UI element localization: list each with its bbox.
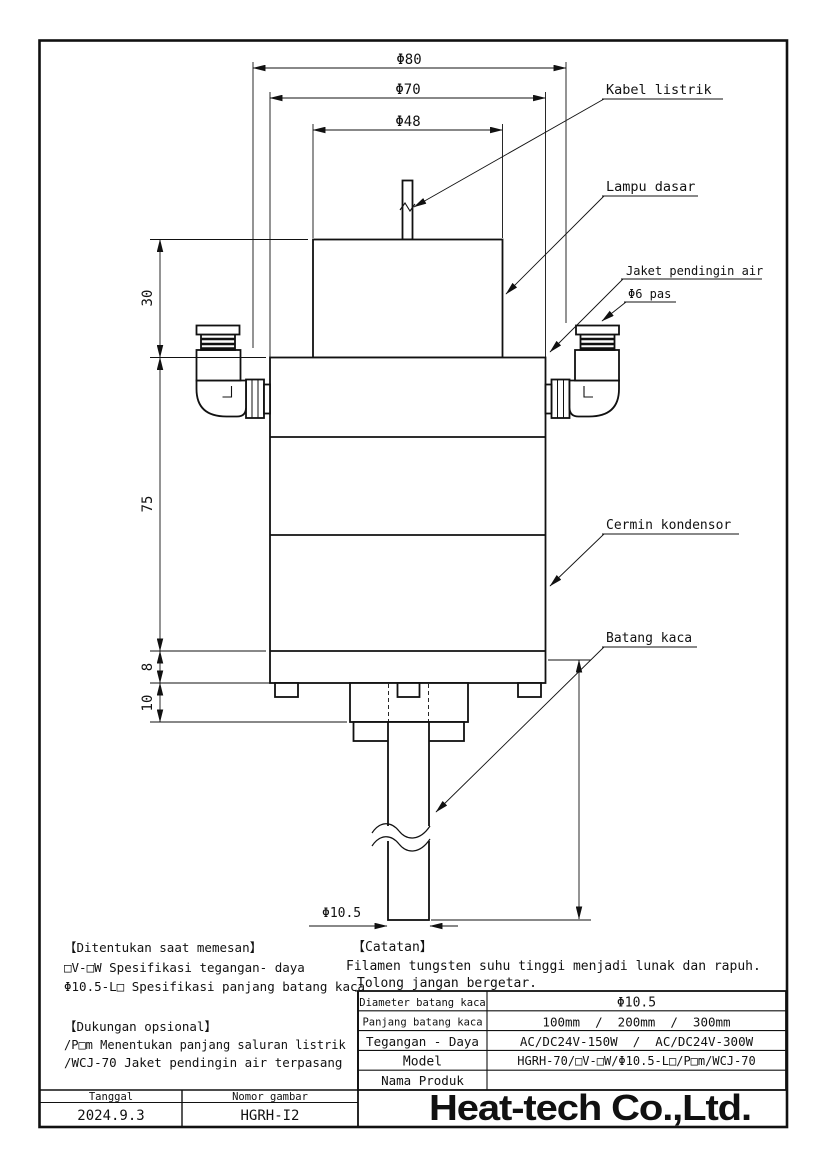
fitting-elbow-right [570, 381, 620, 417]
spec-label-model: Model [403, 1055, 442, 1070]
caution-line-vibration: Tolong jangan bergetar. [357, 976, 537, 991]
rod-break-gap [382, 826, 435, 841]
fitting-washer-left [264, 385, 270, 414]
spec-label-diameter: Diameter batang kaca [359, 997, 485, 1009]
dim-text-8: 8 [140, 663, 156, 671]
caution-notes: 【Catatan】 Filamen tungsten suhu tinggi m… [346, 940, 761, 991]
label-phi6-pas: Φ6 pas [628, 287, 671, 301]
fitting-right [546, 326, 620, 419]
dim-text-30: 30 [140, 290, 156, 307]
order-notes: 【Ditentukan saat memesan】 □V-□W Spesifik… [64, 940, 365, 994]
dim-text-phi80: Φ80 [396, 52, 421, 68]
label-jaket-pendingin: Jaket pendingin air [626, 264, 763, 278]
drawing-number-label: Nomor gambar [232, 1091, 308, 1103]
drawing-sheet: Φ80 Φ70 Φ48 30 75 8 10 Φ10.5 Kabel listr… [0, 0, 826, 1169]
caution-line-filament: Filamen tungsten suhu tinggi menjadi lun… [346, 959, 761, 974]
optional-note-jacket: /WCJ-70 Jaket pendingin air terpasang [64, 1055, 342, 1070]
leader-cermin [550, 534, 604, 586]
fitting-barrel-right [575, 350, 619, 381]
heater-outline [270, 181, 546, 921]
fitting-left [197, 326, 271, 419]
leader-kabel [414, 99, 604, 207]
leader-lampu [506, 196, 604, 294]
label-lampu-dasar: Lampu dasar [606, 179, 695, 195]
spec-value-model: HGRH-70/□V-□W/Φ10.5-L□/P□m/WCJ-70 [517, 1054, 755, 1068]
spec-label-voltage: Tegangan - Daya [366, 1034, 479, 1049]
dim-text-phi48: Φ48 [395, 114, 420, 130]
caution-title: 【Catatan】 [352, 940, 433, 955]
main-body [270, 358, 546, 684]
fitting-cap-right [576, 326, 619, 335]
dim-text-phi70: Φ70 [395, 82, 420, 98]
spec-table: Diameter batang kaca Φ10.5 Panjang batan… [358, 991, 786, 1090]
fitting-nut-right [552, 380, 570, 419]
foot-center [398, 683, 420, 697]
fitting-barrel-left [197, 350, 241, 381]
fitting-nut-left [246, 380, 264, 419]
label-cermin-kondensor: Cermin kondensor [606, 518, 731, 533]
order-notes-title: 【Ditentukan saat memesan】 [64, 940, 262, 955]
dim-text-10: 10 [140, 695, 156, 712]
glass-rod [388, 722, 429, 920]
technical-drawing-svg: Φ80 Φ70 Φ48 30 75 8 10 Φ10.5 Kabel listr… [0, 0, 826, 1169]
order-note-voltage: □V-□W Spesifikasi tegangan- daya [64, 960, 305, 975]
company-logo: Heat-tech Co.,Ltd. [429, 1087, 751, 1128]
foot-left [275, 683, 298, 697]
dim-text-75: 75 [140, 496, 156, 513]
date-label: Tanggal [89, 1091, 133, 1103]
spec-label-product-name: Nama Produk [381, 1073, 464, 1088]
optional-note-cable: /P□m Menentukan panjang saluran listrik [64, 1038, 347, 1052]
fitting-washer-right [546, 385, 552, 414]
spec-label-length: Panjang batang kaca [362, 1017, 482, 1029]
drawing-number-value: HGRH-I2 [240, 1108, 299, 1124]
lamp-housing [313, 240, 503, 358]
fitting-elbow-left [197, 381, 247, 417]
date-value: 2024.9.3 [77, 1108, 144, 1124]
spec-value-diameter: Φ10.5 [617, 996, 656, 1011]
label-kabel-listrik: Kabel listrik [606, 82, 712, 98]
leader-phi6 [602, 302, 626, 321]
spec-value-voltage: AC/DC24V-150W / AC/DC24V-300W [520, 1034, 754, 1049]
spec-value-length: 100mm / 200mm / 300mm [542, 1014, 730, 1029]
label-batang-kaca: Batang kaca [606, 631, 692, 646]
optional-notes-title: 【Dukungan opsional】 [64, 1019, 217, 1034]
optional-notes: 【Dukungan opsional】 /P□m Menentukan panj… [64, 1019, 347, 1070]
dim-text-rod: Φ10.5 [322, 906, 361, 921]
fitting-cap-left [197, 326, 240, 335]
order-note-rod-length: Φ10.5-L□ Spesifikasi panjang batang kaca [64, 979, 365, 994]
foot-right [518, 683, 541, 697]
